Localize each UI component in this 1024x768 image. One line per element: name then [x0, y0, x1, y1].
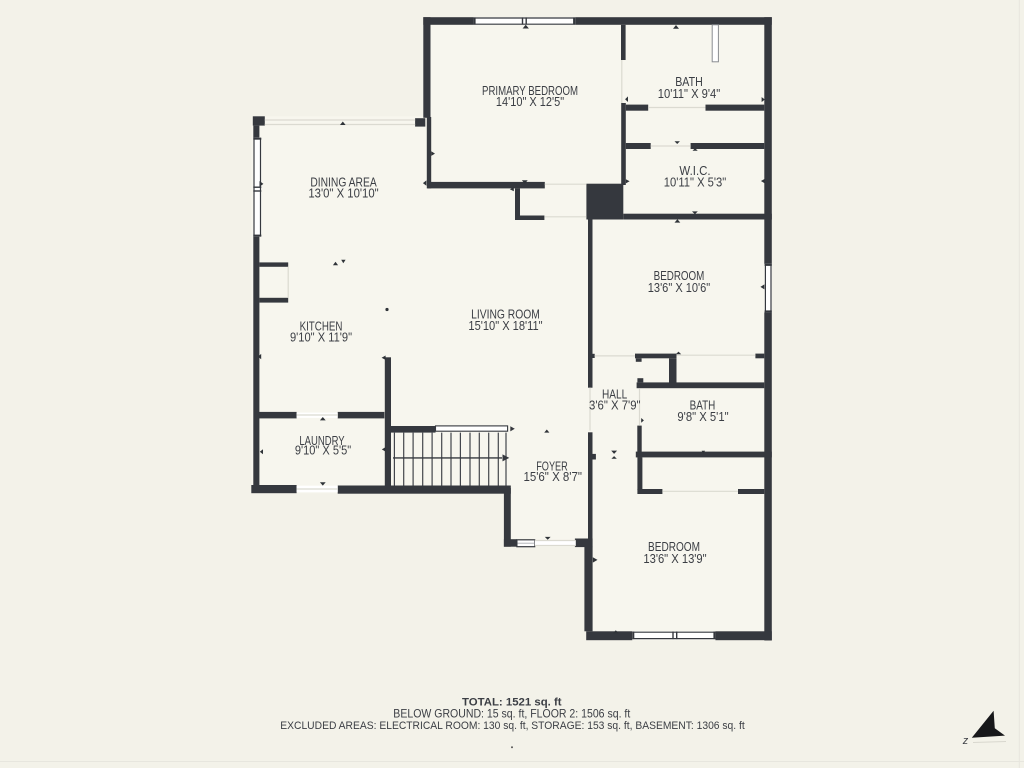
svg-text:9'10" X 11'9": 9'10" X 11'9": [290, 330, 352, 345]
svg-text:15'10" X 18'11": 15'10" X 18'11": [468, 318, 542, 333]
svg-text:9'8" X 5'1": 9'8" X 5'1": [677, 409, 728, 424]
svg-text:10'11" X 9'4": 10'11" X 9'4": [658, 86, 720, 101]
svg-text:15'6" X 8'7": 15'6" X 8'7": [523, 469, 582, 484]
svg-text:13'6" X 10'6": 13'6" X 10'6": [648, 280, 710, 295]
svg-text:EXCLUDED AREAS: ELECTRICAL ROO: EXCLUDED AREAS: ELECTRICAL ROOM: 130 sq.…: [280, 720, 744, 733]
svg-text:10'11" X 5'3": 10'11" X 5'3": [664, 175, 726, 190]
svg-text:13'0" X 10'10": 13'0" X 10'10": [308, 186, 378, 201]
svg-text:3'6" X 7'9": 3'6" X 7'9": [589, 398, 641, 413]
svg-text:14'10" X 12'5": 14'10" X 12'5": [496, 94, 564, 109]
svg-text:13'6" X 13'9": 13'6" X 13'9": [643, 551, 706, 566]
svg-text:z: z: [962, 735, 969, 747]
svg-text:9'10" X 5'5": 9'10" X 5'5": [295, 443, 351, 458]
svg-text:TOTAL: 1521 sq. ft: TOTAL: 1521 sq. ft: [462, 696, 562, 708]
